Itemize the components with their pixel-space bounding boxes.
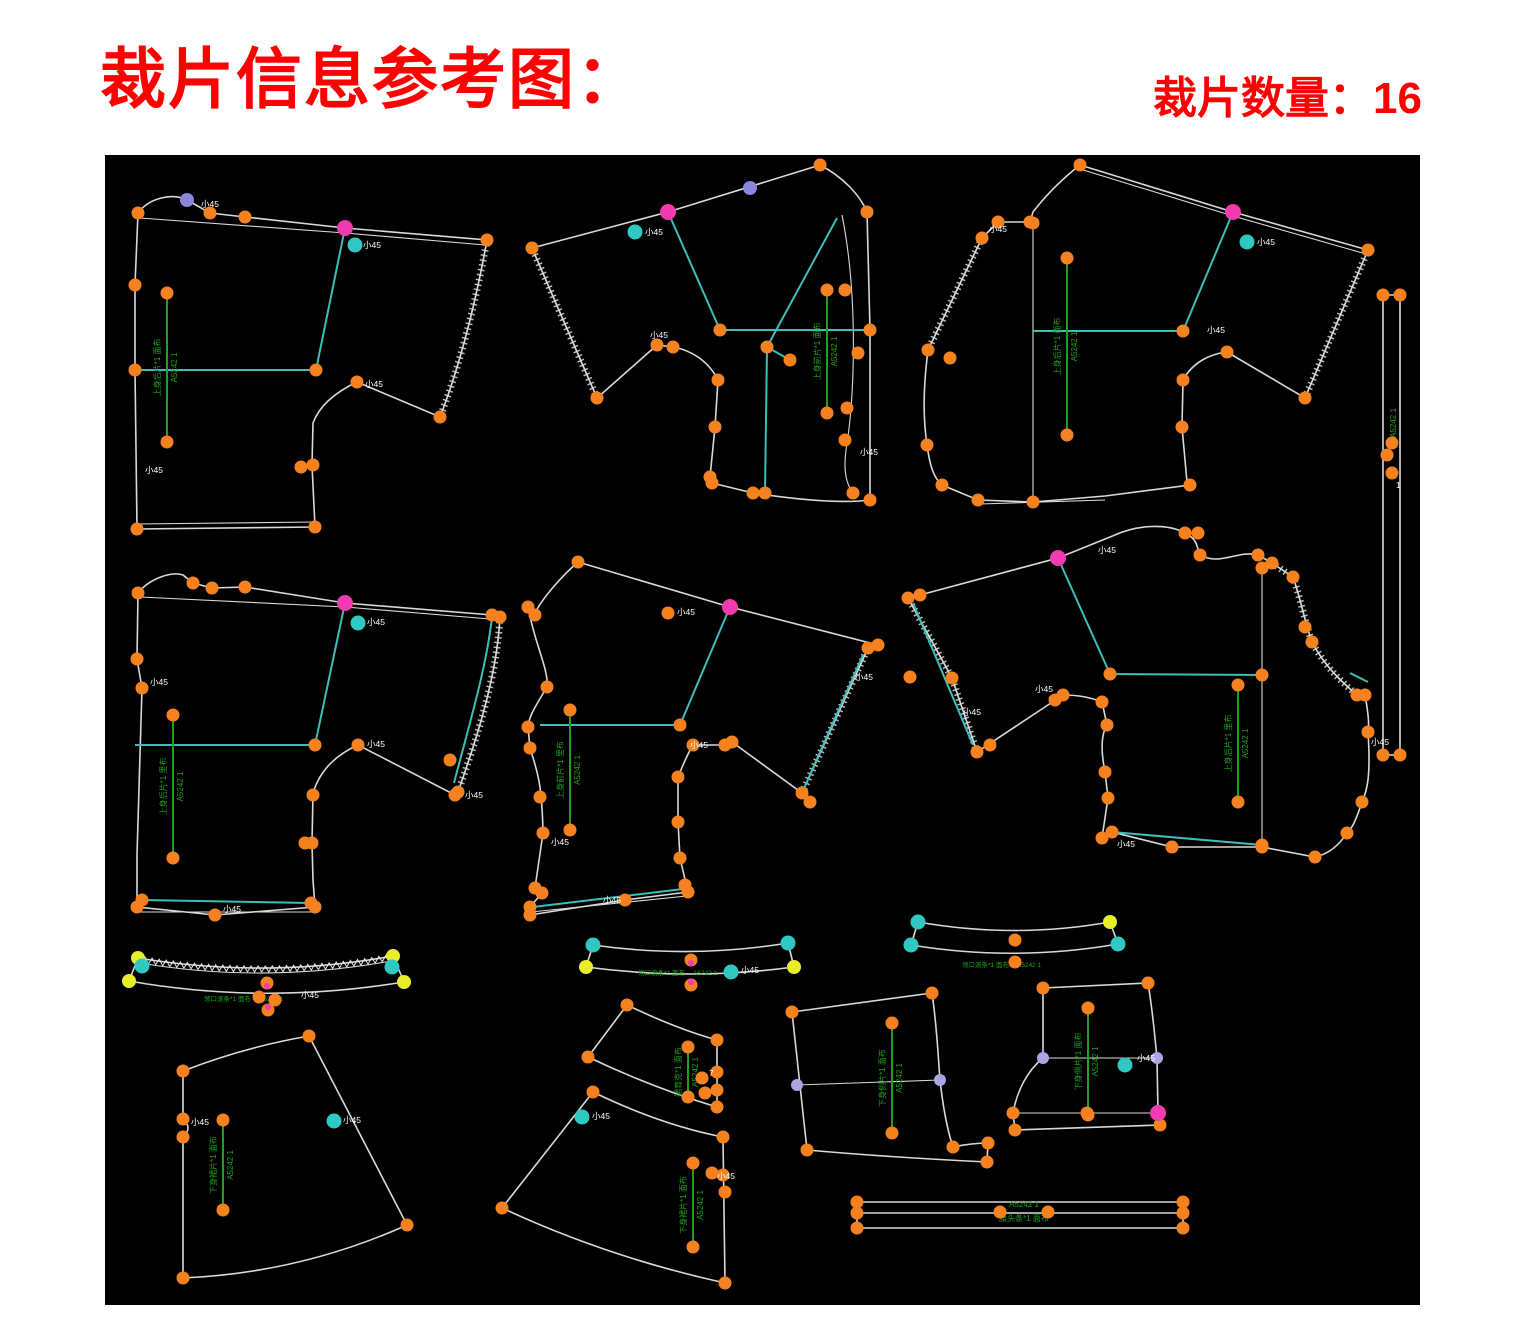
pattern-point <box>743 181 757 195</box>
piece-code-label: A5242 1 <box>1389 408 1398 438</box>
pattern-point <box>936 479 949 492</box>
piece-2: 上身前片*1 面布A5242 1小45小45小45 <box>526 159 879 507</box>
pattern-point <box>586 938 601 953</box>
pattern-point <box>1256 839 1269 852</box>
pattern-point <box>759 487 772 500</box>
internal-guide-line <box>1350 673 1368 682</box>
pattern-point <box>902 592 915 605</box>
page-title: 裁片信息参考图： <box>100 26 644 122</box>
pattern-point <box>187 577 200 590</box>
pattern-point <box>851 1207 864 1220</box>
pattern-point <box>564 824 577 837</box>
pattern-point <box>672 771 685 784</box>
pattern-point <box>1377 749 1390 762</box>
pattern-point <box>839 284 852 297</box>
pattern-point <box>129 364 142 377</box>
pattern-point <box>1037 1052 1049 1064</box>
pattern-point <box>177 1131 190 1144</box>
piece-desc-label: 上身前片*1 面布 <box>812 323 822 381</box>
internal-guide-line <box>1183 212 1233 331</box>
piece-outline <box>588 1005 717 1107</box>
piece-outline <box>135 197 487 529</box>
notch-label: 小45 <box>191 1117 209 1127</box>
notch-label: 小45 <box>1098 545 1116 555</box>
pattern-point <box>348 238 363 253</box>
pattern-point <box>167 709 180 722</box>
pattern-point <box>972 494 985 507</box>
piece-14: 下身侧片*1 面布A5242 1 <box>786 987 995 1169</box>
pattern-point <box>1037 982 1050 995</box>
internal-guide-line <box>1110 674 1262 675</box>
piece-16: A5242 1腰头条*1 面布 <box>851 1196 1190 1235</box>
piece-1: 上身后片*1 面布A5242 1小45小45小45小45 <box>129 193 494 536</box>
pattern-point <box>947 1141 960 1154</box>
piece-code-label: A5242 1 <box>1070 331 1079 361</box>
pattern-point <box>1082 1002 1095 1015</box>
pattern-point <box>864 324 877 337</box>
pattern-point <box>904 671 917 684</box>
notch-label: 小45 <box>677 607 695 617</box>
pattern-point <box>309 739 322 752</box>
notch-label: 小45 <box>717 1171 735 1181</box>
pattern-point <box>1118 1058 1133 1073</box>
pattern-point <box>1049 694 1062 707</box>
pattern-point <box>839 434 852 447</box>
internal-guide-line <box>316 228 345 370</box>
piece-5: 上身后片*1 里布A5242 1小45小45小45小45小45 <box>131 574 507 922</box>
notch-label: 小45 <box>603 895 621 905</box>
piece-3: 上身后片*1 面布A5242 1小45小45小45 <box>921 159 1375 509</box>
pattern-point <box>672 816 685 829</box>
pattern-point <box>265 1004 271 1010</box>
pattern-point <box>1359 689 1372 702</box>
pattern-point <box>1232 679 1245 692</box>
pattern-point <box>1061 252 1074 265</box>
pattern-point <box>167 852 180 865</box>
notch-label: 小45 <box>650 330 668 340</box>
internal-guide-line <box>315 603 345 745</box>
pattern-point <box>674 852 687 865</box>
pattern-point <box>682 1091 695 1104</box>
pattern-point <box>239 211 252 224</box>
pattern-point <box>1042 1206 1055 1219</box>
pattern-point <box>841 402 854 415</box>
pattern-point <box>711 1034 724 1047</box>
pattern-point <box>682 1041 695 1054</box>
internal-guide-line <box>913 603 973 745</box>
pattern-point <box>536 887 549 900</box>
pattern-point <box>1381 449 1394 462</box>
pattern-point <box>914 589 927 602</box>
pattern-point <box>129 279 142 292</box>
pattern-point <box>722 599 738 615</box>
seam-allowance-edge <box>1272 563 1357 695</box>
piece-desc-label: 下身侧片*1 面布 <box>877 1049 887 1107</box>
pattern-point <box>591 392 604 405</box>
pattern-point <box>564 704 577 717</box>
pattern-point <box>994 1206 1007 1219</box>
pattern-point <box>217 1114 230 1127</box>
pattern-point <box>872 639 885 652</box>
notch-label: 小45 <box>1257 237 1275 247</box>
pattern-point <box>1009 1124 1022 1137</box>
pattern-point <box>537 827 550 840</box>
pattern-point <box>719 1186 732 1199</box>
pattern-point <box>660 204 676 220</box>
notch-label: 1 <box>1396 480 1401 490</box>
pattern-point <box>132 587 145 600</box>
pattern-point <box>711 1101 724 1114</box>
piece-code-label: A5242 1 <box>226 1150 235 1180</box>
pattern-point <box>351 616 366 631</box>
notch-label: 小45 <box>1035 684 1053 694</box>
pattern-point <box>1221 346 1234 359</box>
pattern-point <box>206 582 219 595</box>
piece-outline <box>797 1080 940 1085</box>
pattern-point <box>1306 636 1319 649</box>
notch-label: 小45 <box>363 240 381 250</box>
pattern-point <box>444 754 457 767</box>
pattern-point <box>1142 977 1155 990</box>
piece-code-label: A5242 1 <box>693 970 718 977</box>
pattern-point <box>1099 766 1112 779</box>
pattern-point <box>307 459 320 472</box>
piece-7: 上身后片*1 里布A5242 1小45小45小45小45小45 <box>902 526 1390 863</box>
pattern-point <box>1096 696 1109 709</box>
pattern-point <box>1394 749 1407 762</box>
notch-label: 小45 <box>301 990 319 1000</box>
pattern-point <box>926 987 939 1000</box>
pattern-point <box>352 739 365 752</box>
pattern-point <box>1176 421 1189 434</box>
pattern-point <box>307 789 320 802</box>
pattern-point <box>1104 668 1117 681</box>
pattern-point <box>1150 1105 1166 1121</box>
pattern-point <box>177 1065 190 1078</box>
pattern-point <box>541 681 554 694</box>
notch-label: 小45 <box>963 707 981 717</box>
pattern-point <box>1177 1207 1190 1220</box>
piece-code-label: A5242 1 <box>170 352 179 382</box>
pattern-point <box>864 494 877 507</box>
pattern-point <box>814 159 827 172</box>
pattern-point <box>662 607 675 620</box>
piece-desc-label: 上身后片*1 里布 <box>1223 715 1233 773</box>
pattern-point <box>209 909 222 922</box>
piece-code-label: A5242 1 <box>830 336 839 366</box>
pattern-point <box>1386 437 1399 450</box>
pattern-point <box>526 242 539 255</box>
drawing-svg: 上身后片*1 面布A5242 1小45小45小45小45上身前片*1 面布A52… <box>105 155 1420 1305</box>
pattern-point <box>306 837 319 850</box>
pattern-point <box>579 960 593 974</box>
pattern-point <box>401 1219 414 1232</box>
pattern-point <box>351 376 364 389</box>
pattern-point <box>976 232 989 245</box>
pattern-point <box>1074 159 1087 172</box>
internal-guide-line <box>680 607 730 725</box>
pattern-point <box>981 1156 994 1169</box>
piece-code-label: A5242 1 <box>1241 728 1250 758</box>
internal-guide-line <box>1058 558 1110 674</box>
pattern-point <box>674 719 687 732</box>
pattern-point <box>747 487 760 500</box>
pattern-point <box>337 595 353 611</box>
pattern-point <box>847 487 860 500</box>
piece-desc-label: 裙育克*1 面布 <box>673 1047 683 1097</box>
pattern-point <box>667 341 680 354</box>
pattern-point <box>1009 934 1022 947</box>
notch-label: 小45 <box>201 199 219 209</box>
pattern-point <box>984 739 997 752</box>
piece-outline <box>908 526 1369 857</box>
piece-13: 下身裙片*1 面布A5242 1小45小45 <box>496 1086 736 1290</box>
pattern-point <box>239 581 252 594</box>
pattern-point <box>1256 562 1269 575</box>
pattern-point <box>1061 429 1074 442</box>
pattern-point <box>1225 204 1241 220</box>
pattern-point <box>1103 915 1117 929</box>
pattern-point <box>310 364 323 377</box>
pattern-point <box>1256 669 1269 682</box>
pattern-point <box>1007 1107 1020 1120</box>
pattern-point <box>434 411 447 424</box>
notch-label: 小45 <box>645 227 663 237</box>
pattern-point <box>1102 792 1115 805</box>
notch-label: 小45 <box>690 740 708 750</box>
pattern-point <box>1240 235 1255 250</box>
pattern-point <box>904 938 919 953</box>
notch-label: 小45 <box>223 904 241 914</box>
pattern-point <box>724 965 739 980</box>
pattern-point <box>587 1086 600 1099</box>
pattern-point <box>180 193 194 207</box>
pattern-point <box>132 207 145 220</box>
pattern-point <box>712 374 725 387</box>
pattern-point <box>688 979 694 985</box>
pattern-point <box>295 461 308 474</box>
piece-11: 下身裙片*1 面布A5242 1小45小45 <box>177 1030 414 1285</box>
pattern-point <box>1356 796 1369 809</box>
piece-10: 领口滚条*1 面布A5242 1 <box>904 915 1126 970</box>
piece-outline <box>586 967 794 974</box>
piece-desc-label: 领口滚条*1 面布 <box>204 994 251 1003</box>
piece-outline <box>140 597 490 619</box>
piece-desc-label: 上身前片*1 里布 <box>555 741 565 799</box>
piece-8: 领口滚条*1 面布A5242 1小45 <box>122 949 411 1017</box>
pattern-point <box>305 897 318 910</box>
piece-outline <box>924 165 1368 502</box>
pattern-point <box>821 284 834 297</box>
piece-desc-label: 上身后片*1 面布 <box>1052 318 1062 376</box>
pattern-point <box>1096 832 1109 845</box>
piece-count-label: 裁片数量：16 <box>1153 62 1422 126</box>
pattern-canvas: 上身后片*1 面布A5242 1小45小45小45小45上身前片*1 面布A52… <box>105 155 1420 1305</box>
pattern-point <box>1166 841 1179 854</box>
pattern-point <box>934 1074 946 1086</box>
pattern-point <box>687 1157 700 1170</box>
pattern-point <box>921 439 934 452</box>
pattern-point <box>1050 550 1066 566</box>
pattern-point <box>161 287 174 300</box>
notch-label: 小45 <box>150 677 168 687</box>
pattern-point <box>572 556 585 569</box>
pattern-point <box>761 341 774 354</box>
pattern-point <box>688 960 694 966</box>
pattern-point <box>337 220 353 236</box>
pattern-point <box>534 791 547 804</box>
pattern-point <box>309 521 322 534</box>
pattern-point <box>726 736 739 749</box>
pattern-point <box>699 1087 712 1100</box>
pattern-point <box>135 959 150 974</box>
pattern-point <box>264 983 270 989</box>
piece-desc-label: 上身后片*1 面布 <box>152 339 162 397</box>
pattern-point <box>982 1137 995 1150</box>
pattern-point <box>1192 527 1205 540</box>
pattern-point <box>1111 937 1126 952</box>
piece-9: 领口滚条*1 面布A5242 1小45 <box>579 936 801 992</box>
pattern-point <box>628 225 643 240</box>
notch-label: 小45 <box>741 965 759 975</box>
pattern-point <box>1027 496 1040 509</box>
piece-code-label: A5242 1 <box>696 1190 705 1220</box>
pattern-point <box>801 1144 814 1157</box>
notch-label: 7 <box>709 1068 714 1078</box>
pattern-point <box>161 436 174 449</box>
pattern-point <box>791 1079 803 1091</box>
pattern-point <box>886 1127 899 1140</box>
pattern-point <box>177 1272 190 1285</box>
pattern-point <box>717 1131 730 1144</box>
pattern-point <box>651 339 664 352</box>
piece-desc-label: 下身裙片*1 面布 <box>208 1136 218 1194</box>
piece-code-label: A5242 1 <box>176 771 185 801</box>
internal-guide-line <box>802 655 863 793</box>
pattern-point <box>1009 956 1022 969</box>
notch-label: 小45 <box>367 739 385 749</box>
piece-desc-label: 下身裙片*1 面布 <box>678 1176 688 1234</box>
piece-15: 下身侧片*1 面布A5242 1小45 <box>1007 977 1167 1137</box>
pattern-point <box>397 975 411 989</box>
pattern-point <box>131 653 144 666</box>
pattern-point <box>821 407 834 420</box>
internal-guide-line <box>668 212 720 330</box>
piece-outline <box>1080 169 1366 254</box>
pattern-point <box>679 879 692 892</box>
pattern-point <box>621 999 634 1012</box>
pattern-point <box>787 960 801 974</box>
pattern-point <box>1177 1222 1190 1235</box>
pattern-point <box>687 1241 700 1254</box>
pattern-point <box>131 523 144 536</box>
notch-label: 小45 <box>365 379 383 389</box>
pattern-point <box>1179 527 1192 540</box>
pattern-point <box>784 354 797 367</box>
pattern-point <box>886 1017 899 1030</box>
pattern-point <box>1394 289 1407 302</box>
pattern-point <box>781 936 796 951</box>
seam-allowance-edge <box>532 248 597 398</box>
piece-desc-label: 上身后片*1 里布 <box>158 758 168 816</box>
pattern-point <box>582 1051 595 1064</box>
pattern-point <box>1232 796 1245 809</box>
piece-outline <box>593 943 788 952</box>
notch-label: 小45 <box>145 465 163 475</box>
piece-6: 上身前片*1 里布A5242 1小45小45小45小45小45 <box>522 556 885 922</box>
seam-allowance-hatch <box>458 617 500 792</box>
notch-label: 小45 <box>551 837 569 847</box>
pattern-point <box>719 1277 732 1290</box>
pattern-point <box>1299 621 1312 634</box>
pattern-point <box>253 991 266 1004</box>
pattern-point <box>303 1030 316 1043</box>
notch-label: 小45 <box>465 790 483 800</box>
notch-label: 小45 <box>592 1111 610 1121</box>
pattern-point <box>971 746 984 759</box>
pattern-point <box>1194 549 1207 562</box>
pattern-point <box>122 974 136 988</box>
piece-code-label: A5242 1 <box>1091 1046 1100 1076</box>
seam-allowance-hatch <box>1272 563 1357 695</box>
notch-label: 小45 <box>1117 839 1135 849</box>
pattern-point <box>481 234 494 247</box>
pattern-point <box>711 1084 724 1097</box>
notch-label: 小45 <box>855 672 873 682</box>
piece-desc-label: 下身侧片*1 面布 <box>1073 1033 1083 1091</box>
pattern-point <box>709 421 722 434</box>
internal-guide-line <box>142 900 311 903</box>
pattern-point <box>217 1204 230 1217</box>
notch-label: 小45 <box>1207 325 1225 335</box>
piece-desc-label: 领口滚条*1 面布 <box>962 960 1009 969</box>
pattern-point <box>524 909 537 922</box>
pattern-point <box>851 1222 864 1235</box>
piece-code-label: A5242 1 <box>1009 1200 1039 1209</box>
pattern-point <box>177 1113 190 1126</box>
pattern-point <box>706 477 719 490</box>
pattern-point <box>1309 851 1322 864</box>
pattern-point <box>946 672 959 685</box>
pattern-point <box>449 789 462 802</box>
piece-code-label: A5242 1 <box>573 755 582 785</box>
pattern-point <box>575 1110 590 1125</box>
pattern-point <box>136 894 149 907</box>
pattern-point <box>136 682 149 695</box>
pattern-point <box>1177 374 1190 387</box>
pattern-point <box>786 1006 799 1019</box>
pattern-point <box>804 796 817 809</box>
notch-label: 小45 <box>1371 737 1389 747</box>
pattern-point <box>1252 549 1265 562</box>
pattern-point <box>529 609 542 622</box>
notch-label: 小45 <box>989 224 1007 234</box>
piece-outline <box>137 522 315 524</box>
piece-outline <box>918 922 1110 931</box>
piece-outline <box>502 1092 725 1283</box>
pattern-point <box>385 960 400 975</box>
piece-desc-label: 腰头条*1 面布 <box>999 1213 1049 1223</box>
pattern-point <box>496 1202 509 1215</box>
pattern-point <box>1287 571 1300 584</box>
seam-allowance-hatch <box>440 240 487 417</box>
pattern-point <box>494 611 507 624</box>
pattern-point <box>714 324 727 337</box>
pattern-point <box>911 915 926 930</box>
piece-code-label: A5242 1 <box>895 1063 904 1093</box>
pattern-point <box>1362 244 1375 257</box>
pattern-point <box>1101 719 1114 732</box>
